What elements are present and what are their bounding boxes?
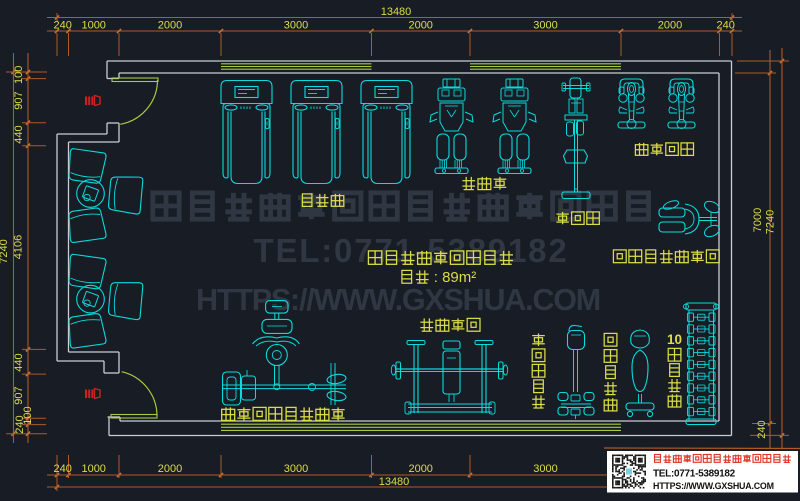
svg-text:2000: 2000 — [408, 463, 432, 475]
svg-text:7240: 7240 — [765, 210, 777, 234]
svg-text:HTTPS://WWW.GXSHUA.COM: HTTPS://WWW.GXSHUA.COM — [196, 283, 600, 317]
svg-text:TEL:0771-5389182: TEL:0771-5389182 — [653, 469, 736, 480]
svg-text:240: 240 — [717, 20, 735, 32]
svg-text:2000: 2000 — [158, 463, 182, 475]
svg-text:907: 907 — [13, 91, 25, 109]
svg-text:907: 907 — [13, 386, 25, 404]
svg-text:13480: 13480 — [381, 6, 412, 18]
svg-text:13480: 13480 — [379, 476, 410, 488]
svg-text:7240: 7240 — [0, 239, 10, 263]
svg-text:4106: 4106 — [13, 235, 25, 259]
svg-text:1000: 1000 — [81, 463, 105, 475]
svg-text:3000: 3000 — [533, 463, 557, 475]
svg-text:2000: 2000 — [658, 20, 682, 32]
svg-text:100: 100 — [13, 66, 25, 84]
svg-text:3000: 3000 — [533, 20, 557, 32]
svg-text:10: 10 — [667, 332, 682, 347]
svg-text:: 89m²: : 89m² — [434, 269, 477, 286]
svg-text:240: 240 — [14, 415, 26, 433]
svg-text:240: 240 — [54, 20, 72, 32]
svg-text:2000: 2000 — [158, 20, 182, 32]
svg-text:440: 440 — [13, 353, 25, 371]
svg-text:3000: 3000 — [284, 20, 308, 32]
svg-text:240: 240 — [54, 463, 72, 475]
svg-text:1000: 1000 — [81, 20, 105, 32]
svg-text:HTTPS://WWW.GXSHUA.COM: HTTPS://WWW.GXSHUA.COM — [653, 481, 774, 491]
svg-text:3000: 3000 — [284, 463, 308, 475]
svg-text:440: 440 — [13, 125, 25, 143]
svg-text:240: 240 — [756, 420, 768, 438]
svg-text:2000: 2000 — [408, 20, 432, 32]
svg-text:7000: 7000 — [752, 208, 764, 232]
